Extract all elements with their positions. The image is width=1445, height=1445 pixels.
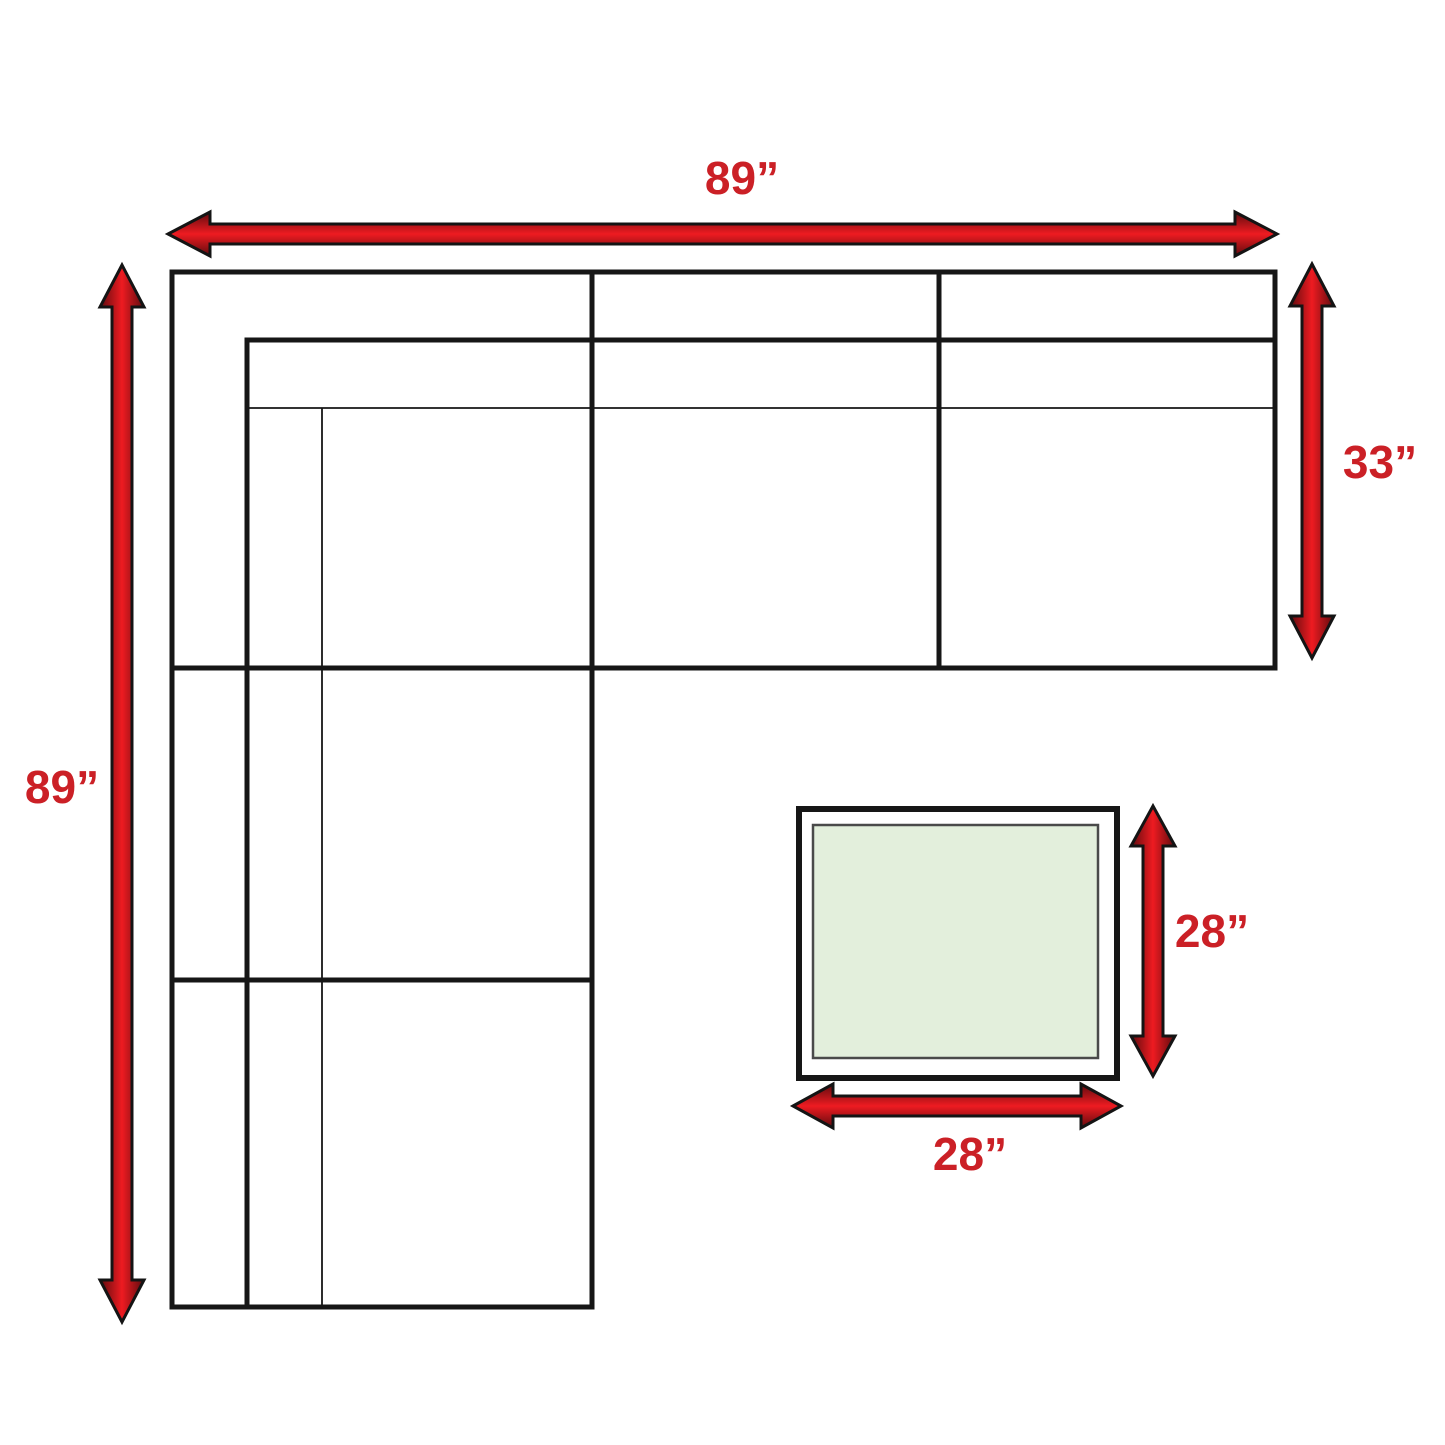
diagram-canvas: [0, 0, 1445, 1445]
sofa-outline: [172, 272, 1275, 1307]
ottoman-depth-arrow: [1131, 806, 1175, 1076]
sofa-depth-arrow: [100, 265, 144, 1322]
ottoman-depth-label: 28”: [1175, 908, 1249, 954]
sofa-section-depth-label: 33”: [1343, 439, 1417, 485]
ottoman-width-label: 28”: [933, 1131, 1007, 1177]
ottoman-width-arrow: [793, 1084, 1121, 1128]
sofa-width-arrow: [168, 212, 1277, 256]
dimension-diagram: 89” 89” 33” 28” 28”: [0, 0, 1445, 1445]
sofa-section-depth-arrow: [1290, 264, 1334, 658]
sofa-backrest-line: [247, 340, 1275, 1307]
sofa-width-label: 89”: [705, 155, 779, 201]
sofa-depth-label: 89”: [25, 764, 99, 810]
ottoman-top-surface: [813, 825, 1098, 1058]
